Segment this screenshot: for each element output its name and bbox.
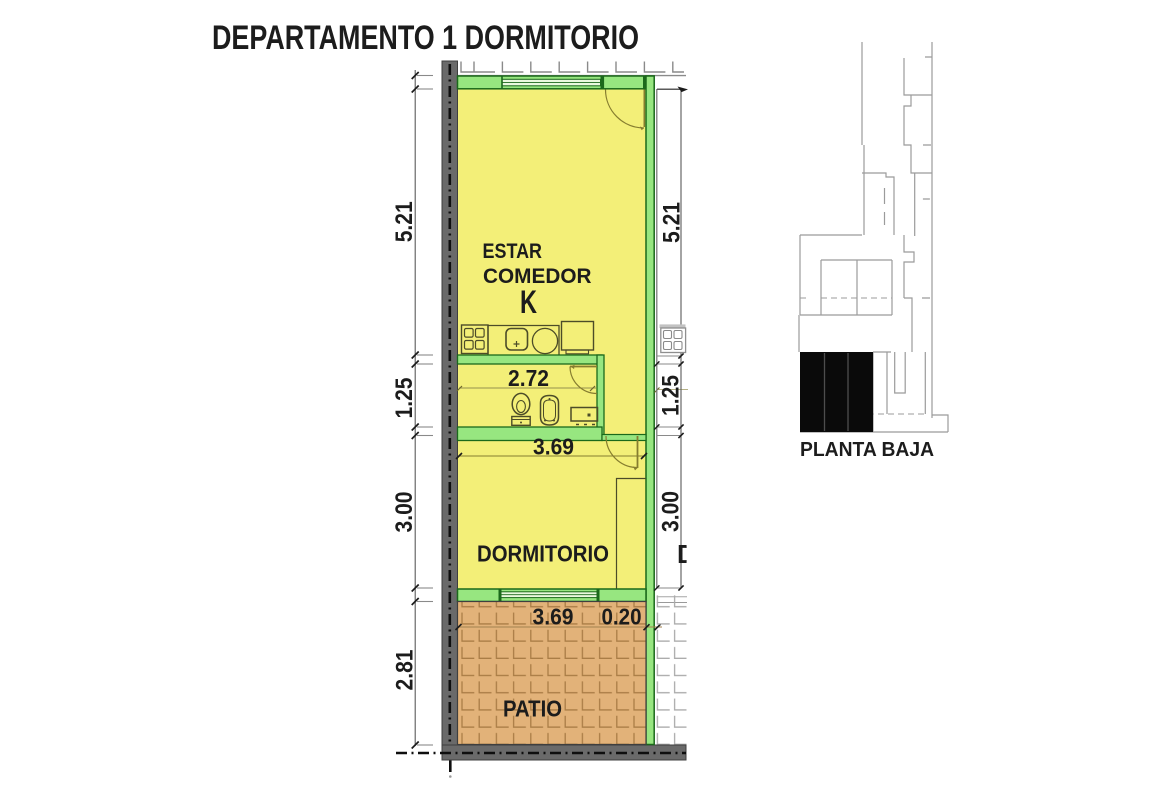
svg-text:5.21: 5.21 xyxy=(391,201,418,242)
svg-text:5.21: 5.21 xyxy=(659,202,686,243)
svg-text:PATIO: PATIO xyxy=(503,696,562,722)
svg-text:DEPARTAMENTO 1 DORMITORIO: DEPARTAMENTO 1 DORMITORIO xyxy=(212,19,639,57)
svg-text:1.25: 1.25 xyxy=(391,378,418,419)
svg-text:DORMITORIO: DORMITORIO xyxy=(477,541,609,567)
svg-text:3.00: 3.00 xyxy=(658,491,685,532)
svg-text:3.69: 3.69 xyxy=(533,604,574,630)
svg-text:COMEDOR: COMEDOR xyxy=(483,265,592,288)
svg-text:2.72: 2.72 xyxy=(508,365,549,391)
svg-text:1.25: 1.25 xyxy=(658,375,685,416)
svg-text:PLANTA BAJA: PLANTA BAJA xyxy=(800,438,934,461)
svg-text:2.81: 2.81 xyxy=(392,650,419,691)
svg-text:ESTAR: ESTAR xyxy=(483,240,543,263)
svg-text:0.20: 0.20 xyxy=(602,604,642,630)
svg-text:3.00: 3.00 xyxy=(391,492,418,533)
svg-text:K: K xyxy=(520,284,537,320)
